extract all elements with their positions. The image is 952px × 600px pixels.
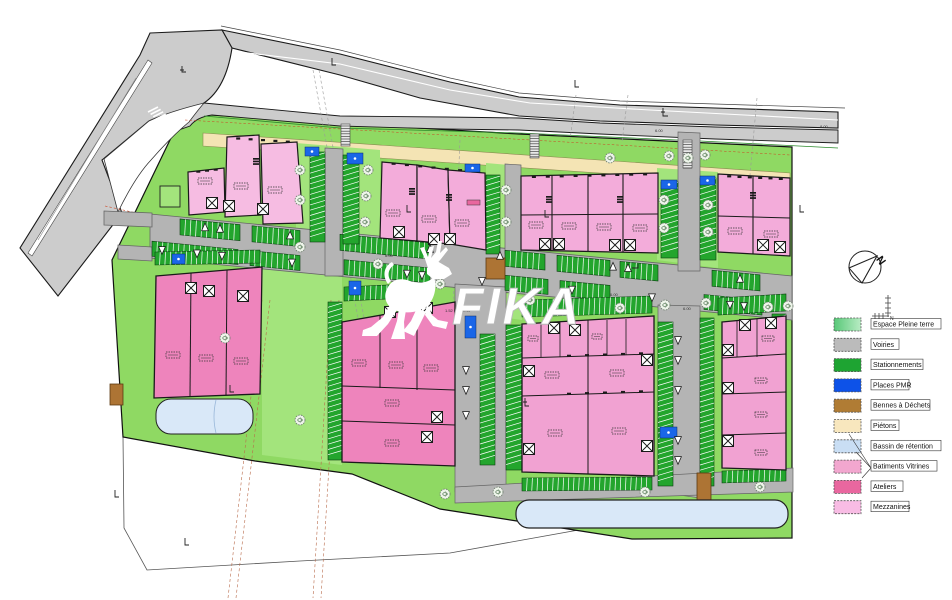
svg-text:Stationnements: Stationnements bbox=[873, 362, 922, 369]
svg-text:Espace Pleine terre: Espace Pleine terre bbox=[873, 322, 934, 329]
svg-text:8.00: 8.00 bbox=[820, 124, 829, 129]
svg-text:Bassin de rétention: Bassin de rétention bbox=[873, 443, 933, 450]
svg-text:Piétons: Piétons bbox=[873, 423, 897, 430]
svg-text:Voiries: Voiries bbox=[873, 342, 895, 349]
svg-text:FIKA: FIKA bbox=[452, 278, 581, 336]
svg-text:Mezzanines: Mezzanines bbox=[873, 504, 911, 511]
svg-text:Batiments Vitrines: Batiments Vitrines bbox=[873, 464, 930, 471]
svg-text:Ateliers: Ateliers bbox=[873, 484, 897, 491]
svg-text:6.00: 6.00 bbox=[683, 306, 692, 311]
svg-text:6.00: 6.00 bbox=[385, 253, 394, 258]
svg-text:Places PMR: Places PMR bbox=[873, 382, 912, 389]
svg-text:6.00: 6.00 bbox=[610, 292, 619, 297]
svg-text:Bennes à Déchets: Bennes à Déchets bbox=[873, 403, 931, 410]
svg-text:6.00: 6.00 bbox=[655, 128, 664, 133]
